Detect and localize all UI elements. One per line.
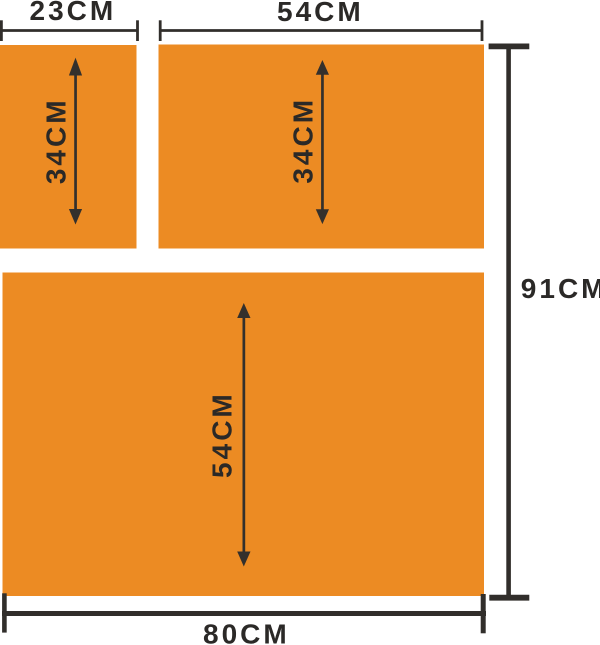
svg-text:23CM: 23CM [30,0,117,26]
svg-text:34CM: 34CM [287,97,318,184]
svg-text:80CM: 80CM [203,619,290,645]
svg-text:34CM: 34CM [41,97,72,184]
svg-text:54CM: 54CM [277,0,364,27]
svg-text:91CM: 91CM [521,273,600,304]
svg-text:54CM: 54CM [207,391,238,478]
